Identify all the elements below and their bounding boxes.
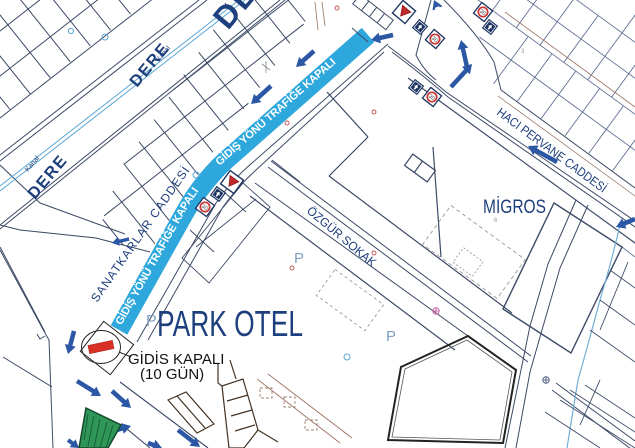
svg-text:(10 GÜN): (10 GÜN) xyxy=(140,365,204,383)
svg-text:PARK OTEL: PARK OTEL xyxy=(157,303,303,344)
svg-text:P: P xyxy=(146,313,157,330)
svg-text:P: P xyxy=(386,328,396,345)
svg-text:MİGROS: MİGROS xyxy=(483,197,546,218)
svg-text:P: P xyxy=(294,250,304,267)
